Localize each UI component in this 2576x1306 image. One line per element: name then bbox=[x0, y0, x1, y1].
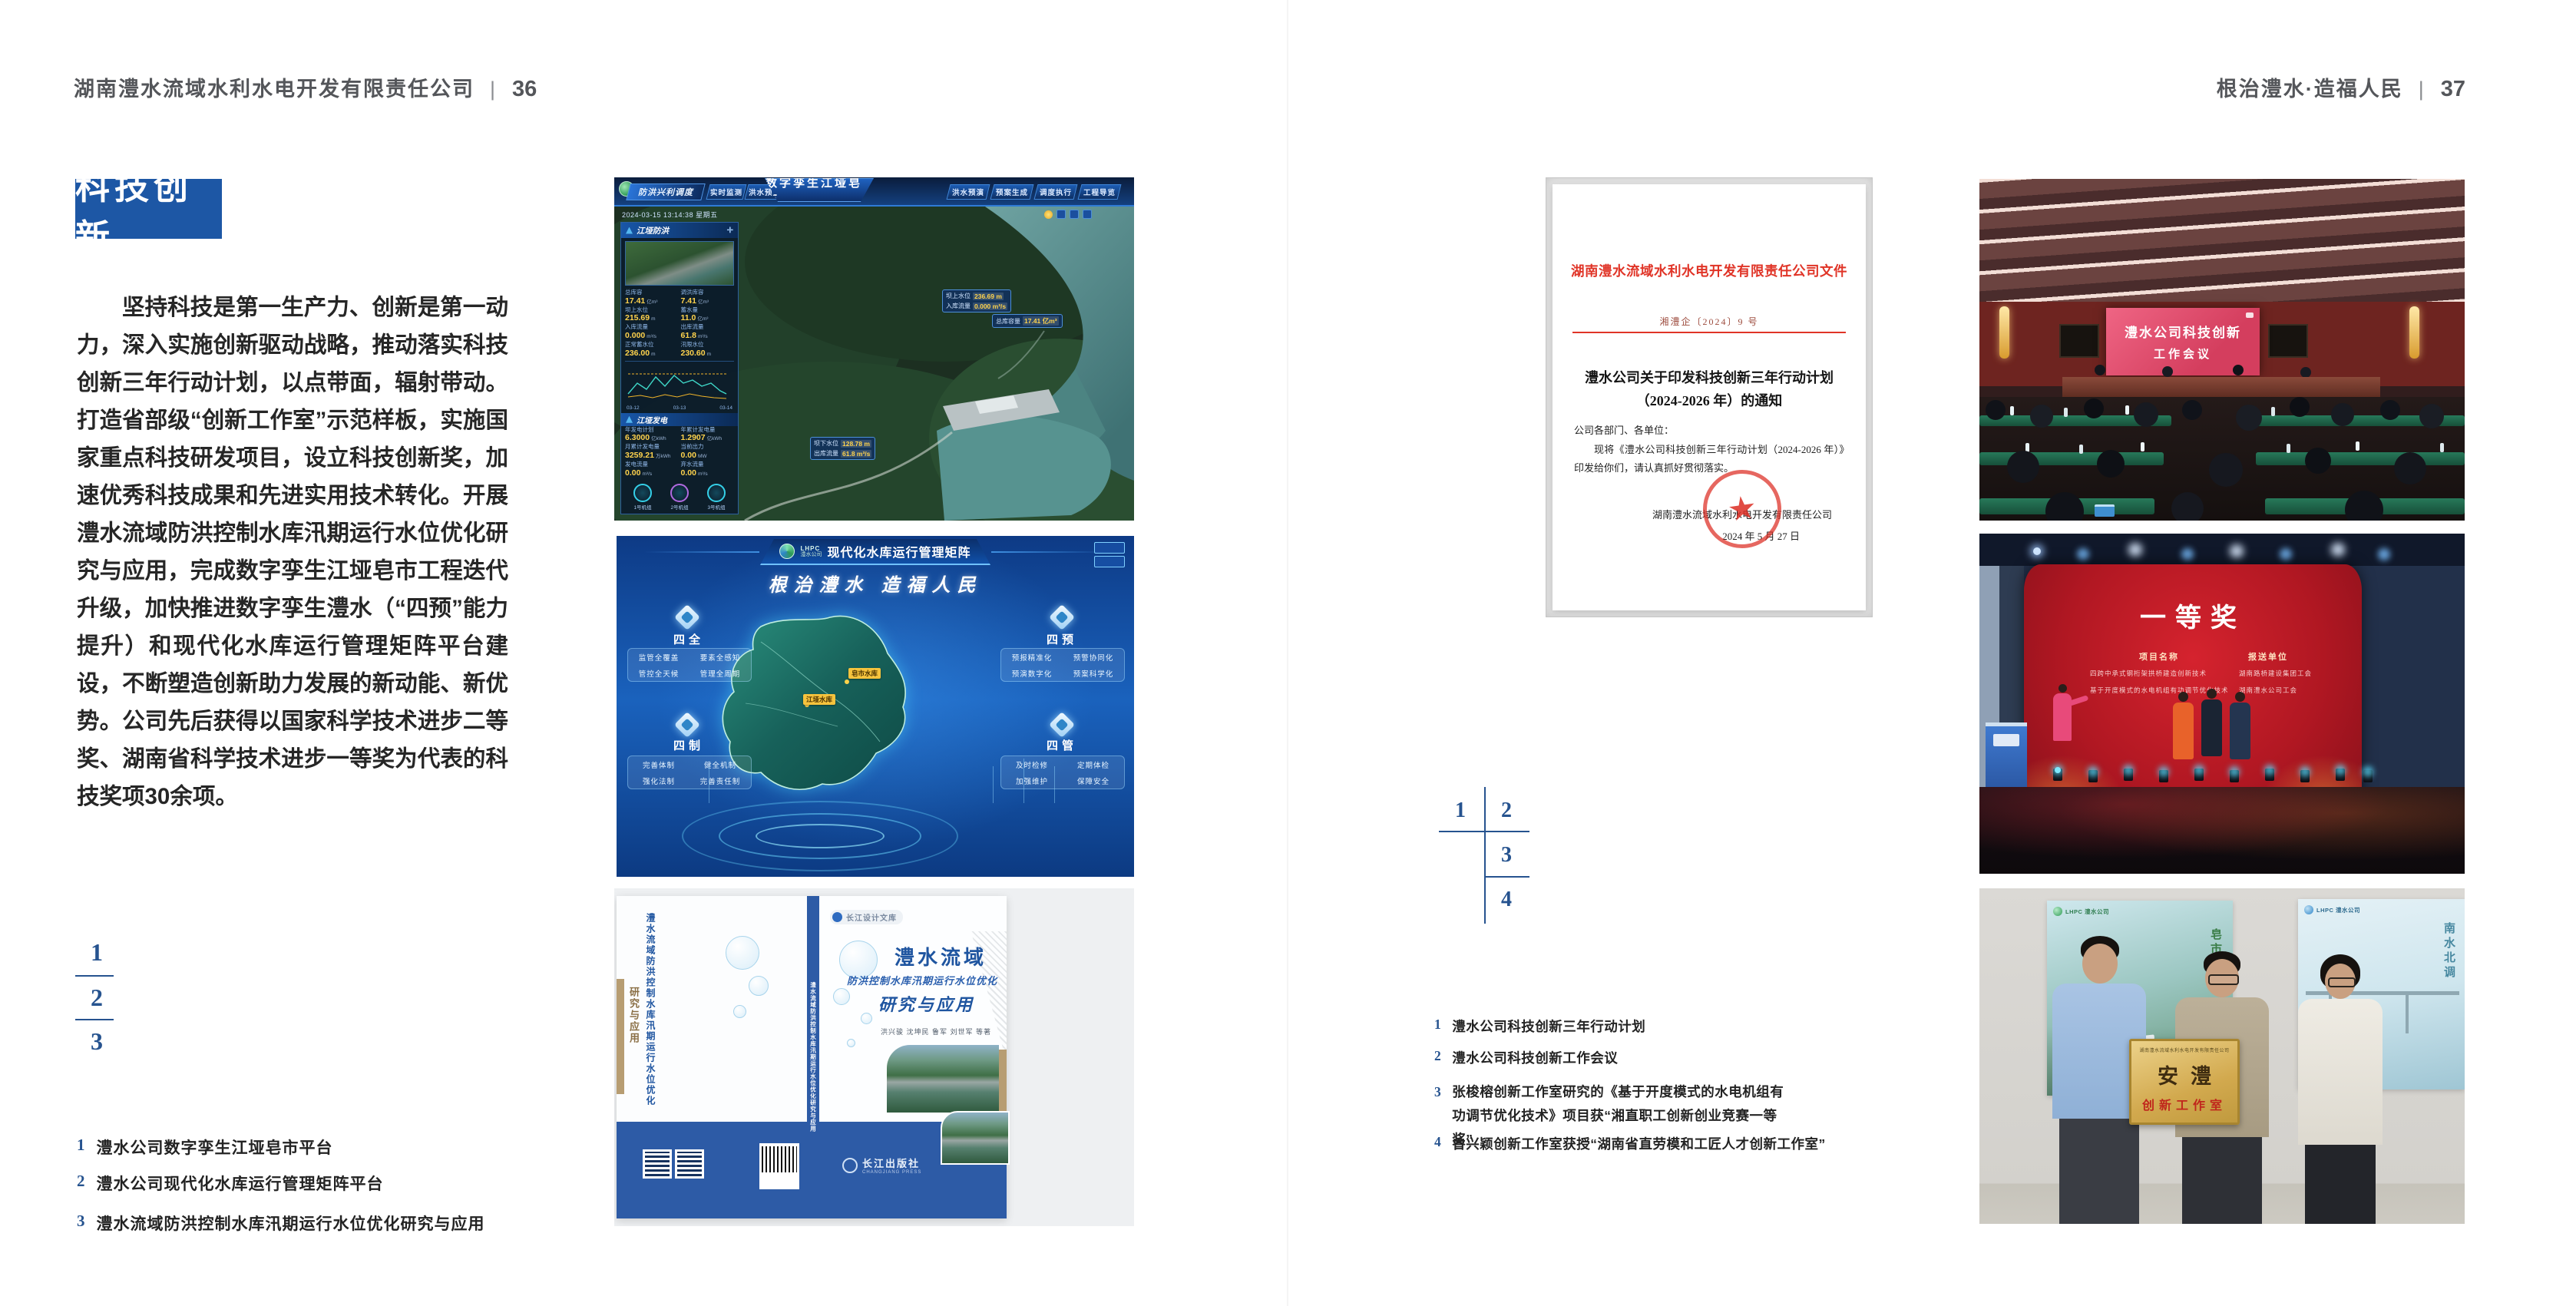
book-authors: 洪兴骏 沈坤民 鲁军 刘世军 等著 bbox=[881, 1027, 991, 1037]
metric: 正常蓄水位236.00m bbox=[625, 342, 679, 358]
book-title-sub: 防洪控制水库汛期运行水位优化 bbox=[847, 973, 997, 987]
metric: 蓄水量11.0亿m³ bbox=[681, 307, 735, 323]
tissue-box bbox=[2095, 504, 2115, 517]
map-data-tag: 坝上水位236.69 m 入库流量0.000 m³/s bbox=[942, 289, 1011, 312]
person-white-tee bbox=[2298, 999, 2383, 1145]
chart-x-ticks: 03-12 03-13 03-14 bbox=[625, 405, 734, 411]
desk-mat bbox=[1979, 498, 2154, 514]
podium-sign bbox=[1993, 734, 2019, 746]
group-panel-sizhi: 完善体制健全机制 强化法制完善责任制 bbox=[627, 755, 752, 789]
document-red-rule bbox=[1572, 332, 1846, 333]
company-name: 湖南澧水流域水利水电开发有限责任公司 bbox=[74, 72, 475, 102]
group-icon-sizhi bbox=[674, 712, 700, 738]
book-title-tail: 研究与应用 bbox=[878, 991, 974, 1016]
wall-lamp bbox=[2409, 306, 2419, 359]
timestamp: 2024-03-15 13:14:38 星期五 bbox=[622, 210, 718, 220]
caption-number: 1 bbox=[77, 1136, 86, 1155]
document-body: 现将《澧水公司科技创新三年行动计划（2024-2026 年）》印发给你们，请认真… bbox=[1574, 441, 1844, 478]
group-icon-siquan bbox=[674, 604, 700, 630]
plaque-org-line: 湖南澧水流域水利水电开发有限责任公司 bbox=[2139, 1046, 2229, 1053]
gauge-unit-3: 3号机组 bbox=[707, 484, 726, 511]
book-spine: 澧水流域防洪控制水库汛期运行水位优化研究与应用 bbox=[807, 896, 819, 1218]
water-bottles bbox=[2010, 406, 2014, 415]
gauge-unit-1: 1号机组 bbox=[633, 484, 652, 511]
document-title-line2: （2024-2026 年）的通知 bbox=[1553, 390, 1866, 410]
figure-number-4: 4 bbox=[1491, 888, 1522, 912]
toolbar-icon[interactable] bbox=[1057, 210, 1066, 219]
document-red-header: 湖南澧水流域水利水电开发有限责任公司文件 bbox=[1553, 261, 1866, 280]
light-pillar bbox=[709, 766, 709, 803]
map-data-tag: 总库容量17.41 亿m³ bbox=[992, 314, 1063, 328]
page-number-left: 36 bbox=[512, 77, 537, 102]
figure-book-cover: 澧水流域防洪控制水库汛期运行水位优化 研究与应用 澧水流域防洪控制水库汛期运行水… bbox=[614, 888, 1134, 1226]
right-page-header: 根治澧水·造福人民 | 37 bbox=[2217, 72, 2465, 102]
caption-text: 澧水公司现代化水库运行管理矩阵平台 bbox=[97, 1172, 384, 1195]
awardee-orange bbox=[2173, 692, 2194, 759]
document-paper: 湖南澧水流域水利水电开发有限责任公司文件 湘澧企〔2024〕9 号 澧水公司关于… bbox=[1553, 184, 1866, 610]
figure-plaque-photo: LHPC 澧水公司 皂市水库 LHPC 澧水公司 南水北调 湖 bbox=[1979, 888, 2465, 1224]
caption-number: 3 bbox=[77, 1212, 86, 1231]
figure-index-rule bbox=[75, 975, 114, 977]
audience-area bbox=[1979, 397, 2465, 521]
metric: 年累计发电量1.2907亿kWh bbox=[681, 427, 735, 443]
tan-accent bbox=[617, 979, 624, 1094]
power-panel-header: 江垭发电 bbox=[621, 413, 738, 426]
map-data-tag: 坝下水位128.78 m 出库流量61.8 m³/s bbox=[810, 437, 875, 460]
screen-button[interactable] bbox=[1094, 556, 1125, 567]
award-title: 一等奖 bbox=[2024, 597, 2362, 634]
presenter-suit bbox=[2201, 689, 2222, 756]
wall-tv bbox=[2059, 324, 2099, 358]
bubble-decoration bbox=[726, 936, 759, 970]
series-logo-icon bbox=[832, 912, 842, 922]
series-logo: 长江设计文库 bbox=[830, 910, 903, 924]
gauge-dial-icon bbox=[633, 484, 652, 502]
header-divider: | bbox=[2419, 78, 2426, 101]
figure-matrix-platform: LHPC 澧水公司 现代化水库运行管理矩阵 根治澧水 造福人民 江垭水库 皂市水… bbox=[617, 536, 1134, 877]
module-label: 防洪兴利调度 bbox=[626, 184, 705, 200]
poster-brand: LHPC 澧水公司 bbox=[2304, 905, 2360, 914]
brand-block: LHPC 澧水公司 bbox=[800, 546, 822, 557]
meeting-screen: 澧水公司科技创新 工作会议 bbox=[2106, 308, 2260, 375]
group-icon-siguan bbox=[1049, 712, 1075, 738]
water-level-chart: 03-12 03-13 03-14 bbox=[625, 361, 734, 411]
map-label-zaoshi: 皂市水库 bbox=[848, 668, 881, 679]
metric: 总库容17.41亿m³ bbox=[625, 289, 679, 306]
toolbar-icon[interactable] bbox=[1070, 210, 1079, 219]
metric: 年发电计划6.3000亿kWh bbox=[625, 427, 679, 443]
flood-control-panel: 江垭防洪 ✛ 总库容17.41亿m³ 调洪库容7.41亿m³ 坝上水位215.6… bbox=[620, 222, 739, 514]
figure-number-2: 2 bbox=[80, 984, 114, 1012]
stage-light-glow bbox=[2055, 767, 2061, 773]
header-wing bbox=[644, 551, 759, 553]
person-pants bbox=[2059, 1119, 2139, 1224]
weather-icons bbox=[1044, 210, 1092, 219]
column-header-org: 报送单位 bbox=[2248, 650, 2288, 663]
stage-truss bbox=[1979, 534, 2465, 566]
innovation-studio-plaque: 湖南澧水流域水利水电开发有限责任公司 安澧 创新工作室 bbox=[2129, 1039, 2240, 1125]
publisher-icon bbox=[842, 1158, 858, 1173]
caption-left-3: 3 澧水流域防洪控制水库汛期运行水位优化研究与应用 bbox=[77, 1212, 485, 1235]
metric: 发电流量0.00m³/s bbox=[625, 461, 679, 478]
water-bottles bbox=[2025, 443, 2029, 452]
bubble-decoration bbox=[749, 976, 769, 996]
glasses-icon bbox=[2328, 977, 2356, 987]
org-item: 湖南路桥建设集团工会 bbox=[2239, 669, 2312, 678]
figure-number-1: 1 bbox=[1445, 798, 1476, 823]
light-pillar bbox=[993, 766, 994, 803]
audience-silhouettes bbox=[1986, 400, 2006, 420]
index-vertical-rule bbox=[1484, 787, 1486, 924]
metric: 入库流量0.000m³/s bbox=[625, 324, 679, 340]
sail-icon bbox=[626, 416, 633, 423]
figure-digital-twin-platform: 防洪兴利调度 实时监测 洪水预报 防洪预警 数字孪生江垭皂市 洪水预演 预案生成… bbox=[614, 177, 1134, 521]
section-title: 科技创新 bbox=[75, 179, 222, 239]
group-title: 四制 bbox=[627, 737, 750, 753]
person-pants bbox=[2182, 1137, 2262, 1224]
glasses-icon bbox=[2208, 974, 2239, 985]
index-horizontal-rule bbox=[1439, 831, 1529, 832]
screen-title-line1: 澧水公司科技创新 bbox=[2106, 322, 2260, 341]
caption-right-2: 2 澧水公司科技创新工作会议 bbox=[1434, 1048, 1618, 1067]
back-title-tail-vertical: 研究与应用 bbox=[627, 987, 641, 1079]
spotlights bbox=[2033, 547, 2041, 555]
metric: 月累计发电量3259.21万kWh bbox=[625, 444, 679, 460]
tab-dispatch-execution[interactable]: 调度执行 bbox=[1034, 184, 1078, 200]
expand-icon[interactable]: ✛ bbox=[727, 226, 733, 235]
book-title-main: 澧水流域 bbox=[894, 942, 987, 970]
panel-header: 江垭防洪 ✛ bbox=[621, 223, 738, 238]
caption-right-1: 1 澧水公司科技创新三年行动计划 bbox=[1434, 1017, 1645, 1036]
tab-flood-rehearsal[interactable]: 洪水预演 bbox=[947, 184, 990, 200]
page-number-right: 37 bbox=[2441, 77, 2465, 102]
body-paragraph: 坚持科技是第一生产力、创新是第一动力，深入实施创新驱动战略，推动落实科技创新三年… bbox=[77, 289, 508, 815]
figure-number-3: 3 bbox=[1491, 843, 1522, 868]
left-page-header: 湖南澧水流域水利水电开发有限责任公司 | 36 bbox=[74, 72, 537, 102]
caption-number: 2 bbox=[77, 1172, 86, 1191]
metric: 调洪库容7.41亿m³ bbox=[681, 289, 735, 306]
dam-photo bbox=[887, 1045, 999, 1113]
motto: 根治澧水·造福人民 bbox=[2217, 72, 2403, 102]
platform-title: 数字孪生江垭皂市 bbox=[765, 178, 874, 202]
group-title: 四管 bbox=[1000, 737, 1123, 753]
index-horizontal-rule bbox=[1484, 876, 1529, 878]
power-metrics: 年发电计划6.3000亿kWh 年累计发电量1.2907亿kWh 月累计发电量3… bbox=[621, 426, 738, 478]
poster-bridge-pylon bbox=[2406, 995, 2409, 1033]
document-salutation: 公司各部门、各单位： bbox=[1574, 422, 1674, 437]
rostrum-speakers bbox=[2095, 365, 2105, 375]
bubble-decoration bbox=[861, 1013, 872, 1024]
screen-title-line2: 工作会议 bbox=[2106, 346, 2260, 362]
person-head bbox=[2082, 944, 2118, 984]
group-panel-siguan: 及时检修定期体检 加强维护保障安全 bbox=[1000, 755, 1125, 789]
figure-meeting-photo: 澧水公司科技创新 工作会议 bbox=[1979, 179, 2465, 521]
tab-project-tour[interactable]: 工程导览 bbox=[1078, 184, 1122, 200]
matrix-header: LHPC 澧水公司 现代化水库运行管理矩阵 bbox=[760, 539, 990, 565]
gauge-dial-icon bbox=[707, 484, 726, 502]
figure-number-2: 2 bbox=[1491, 798, 1522, 823]
desk-mat bbox=[2248, 415, 2465, 426]
figure-index-rule bbox=[75, 1019, 114, 1020]
unit-gauges: 1号机组 2号机组 3号机组 bbox=[621, 482, 738, 514]
bubble-decoration bbox=[833, 988, 850, 1005]
column-header-project: 项目名称 bbox=[2139, 650, 2179, 663]
page-gutter bbox=[1287, 0, 1289, 1306]
bubble-decoration bbox=[847, 1039, 855, 1047]
toolbar-icon[interactable] bbox=[1083, 210, 1092, 219]
back-title-vertical: 澧水流域防洪控制水库汛期运行水位优化 bbox=[644, 913, 657, 1128]
desk-mat bbox=[1979, 452, 2164, 465]
poster-brand: LHPC 澧水公司 bbox=[2053, 907, 2109, 916]
group-title: 四全 bbox=[627, 631, 750, 647]
figure-award-photo: 一等奖 项目名称 四跨中承式钢桁架拱桥建造创新技术 基于开度模式的水电机组有功调… bbox=[1979, 534, 2465, 874]
document-title-line1: 澧水公司关于印发科技创新三年行动计划 bbox=[1553, 367, 1866, 387]
publisher-logo: 长江出版社 CHANGJIANG PRESS bbox=[842, 1156, 921, 1175]
project-item: 四跨中承式钢桁架拱桥建造创新技术 bbox=[2090, 669, 2207, 678]
group-panel-siyu: 预报精准化预警协同化 预演数字化预案科学化 bbox=[1000, 648, 1125, 682]
desk-mat bbox=[2256, 452, 2465, 465]
screen-logo-icon bbox=[2246, 312, 2254, 318]
sail-icon bbox=[626, 227, 633, 234]
lhpc-logo-icon bbox=[2304, 905, 2313, 914]
metric: 弃水流量0.00m³/s bbox=[681, 461, 735, 478]
metric: 坝上水位215.69m bbox=[625, 307, 679, 323]
dam-thumbnail bbox=[625, 241, 734, 286]
reservoir-metrics: 总库容17.41亿m³ 调洪库容7.41亿m³ 坝上水位215.69m 蓄水量1… bbox=[621, 289, 738, 359]
seal-star-icon bbox=[1728, 494, 1757, 524]
host-head bbox=[2058, 684, 2067, 693]
light-pillar bbox=[1023, 759, 1024, 803]
slogan-calligraphy: 根治澧水 造福人民 bbox=[617, 570, 1134, 597]
bubble-decoration bbox=[733, 1005, 746, 1018]
tab-plan-generation[interactable]: 预案生成 bbox=[990, 184, 1034, 200]
header-wing bbox=[991, 551, 1106, 553]
plaque-main-title: 安澧 bbox=[2145, 1060, 2224, 1089]
ripple-ring bbox=[756, 824, 885, 848]
figure-official-document: 湖南澧水流域水利水电开发有限责任公司文件 湘澧企〔2024〕9 号 澧水公司关于… bbox=[1546, 177, 1873, 617]
group-title: 四预 bbox=[1000, 631, 1123, 647]
qr-code bbox=[675, 1149, 704, 1179]
book-spread: 澧水流域防洪控制水库汛期运行水位优化 研究与应用 澧水流域防洪控制水库汛期运行水… bbox=[617, 896, 1007, 1218]
caption-left-1: 1 澧水公司数字孪生江垭皂市平台 bbox=[77, 1136, 333, 1159]
group-panel-siquan: 监管全覆盖要素全感知 管控全天候管理全周期 bbox=[627, 648, 752, 682]
figure-number-1: 1 bbox=[80, 938, 114, 967]
gauge-dial-icon bbox=[670, 484, 689, 502]
caption-right-4: 4 曾兴颖创新工作室获授“湖南省直劳模和工匠人才创新工作室” bbox=[1434, 1134, 1826, 1153]
map-label-jiangya: 江垭水库 bbox=[803, 694, 835, 705]
plaque-sub-title: 创新工作室 bbox=[2142, 1095, 2227, 1113]
caption-text: 澧水流域防洪控制水库汛期运行水位优化研究与应用 bbox=[97, 1212, 485, 1235]
header-divider: | bbox=[490, 78, 497, 101]
metric: 当前出力0.00MW bbox=[681, 444, 735, 460]
magazine-spread: 湖南澧水流域水利水电开发有限责任公司 | 36 科技创新 坚持科技是第一生产力、… bbox=[0, 0, 2576, 1306]
group-icon-siyu bbox=[1049, 604, 1075, 630]
lhpc-logo-icon bbox=[2053, 907, 2062, 916]
reflective-stage-floor bbox=[1979, 787, 2465, 874]
caption-left-2: 2 澧水公司现代化水库运行管理矩阵平台 bbox=[77, 1172, 384, 1195]
screen-button[interactable] bbox=[1094, 542, 1125, 554]
metric: 汛限水位230.60m bbox=[681, 342, 735, 358]
person-pants bbox=[2305, 1145, 2376, 1224]
awardee-navy bbox=[2230, 692, 2250, 759]
gauge-unit-2: 2号机组 bbox=[670, 484, 689, 511]
caption-text: 澧水公司数字孪生江垭皂市平台 bbox=[97, 1136, 333, 1159]
wall-lamp bbox=[1999, 306, 2009, 359]
metric: 出库流量61.8m³/s bbox=[681, 324, 735, 340]
sun-icon bbox=[1044, 210, 1053, 219]
barcode bbox=[759, 1143, 799, 1189]
poster-label-vertical: 南水北调 bbox=[2441, 922, 2457, 980]
desk-mat bbox=[2265, 498, 2465, 514]
rostrum-desk bbox=[2062, 377, 2380, 397]
company-logo-icon bbox=[779, 544, 795, 559]
qr-code bbox=[643, 1149, 672, 1179]
document-number: 湘澧企〔2024〕9 号 bbox=[1553, 315, 1866, 328]
light-pillar bbox=[1054, 766, 1055, 803]
matrix-title: 现代化水库运行管理矩阵 bbox=[827, 542, 971, 560]
tab-realtime-monitoring[interactable]: 实时监测 bbox=[706, 184, 747, 200]
desk-mat bbox=[1979, 415, 2171, 426]
ceiling-lights bbox=[1979, 179, 2465, 308]
figure-number-3: 3 bbox=[80, 1027, 114, 1056]
dam-photo-small bbox=[941, 1111, 1010, 1165]
wall-tv bbox=[2268, 324, 2308, 358]
